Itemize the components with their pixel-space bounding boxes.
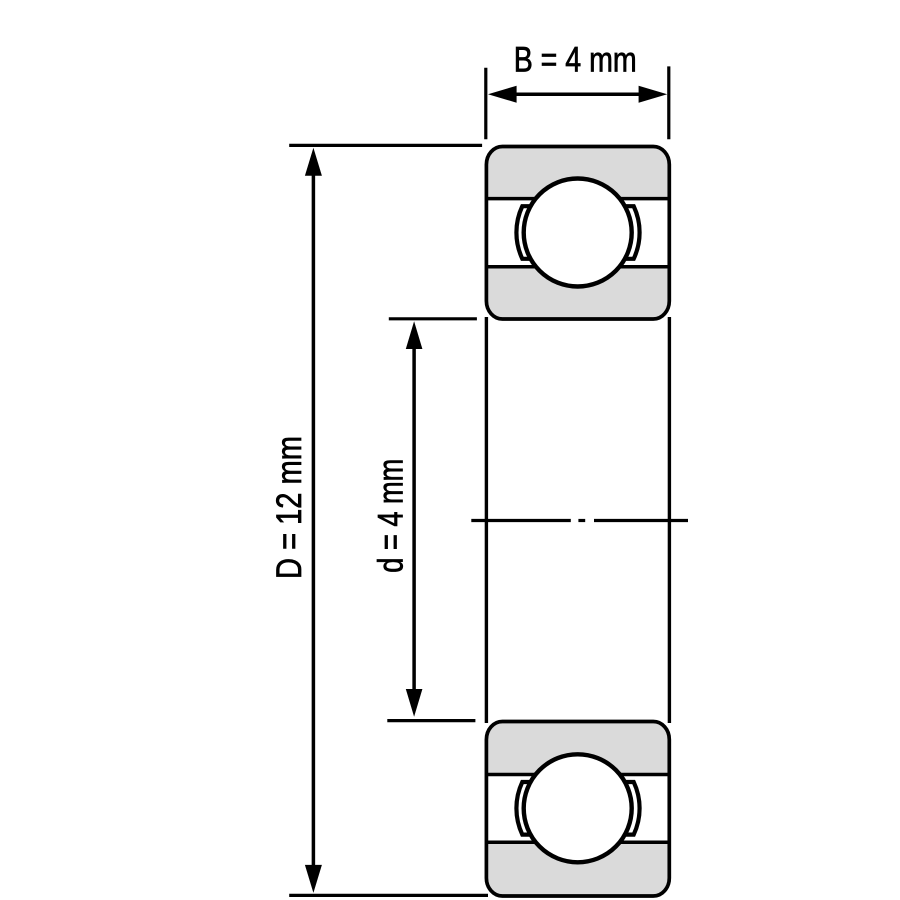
svg-text:d = 4 mm: d = 4 mm xyxy=(371,459,410,573)
svg-text:B = 4 mm: B = 4 mm xyxy=(514,41,637,80)
svg-text:D = 12 mm: D = 12 mm xyxy=(270,436,309,579)
